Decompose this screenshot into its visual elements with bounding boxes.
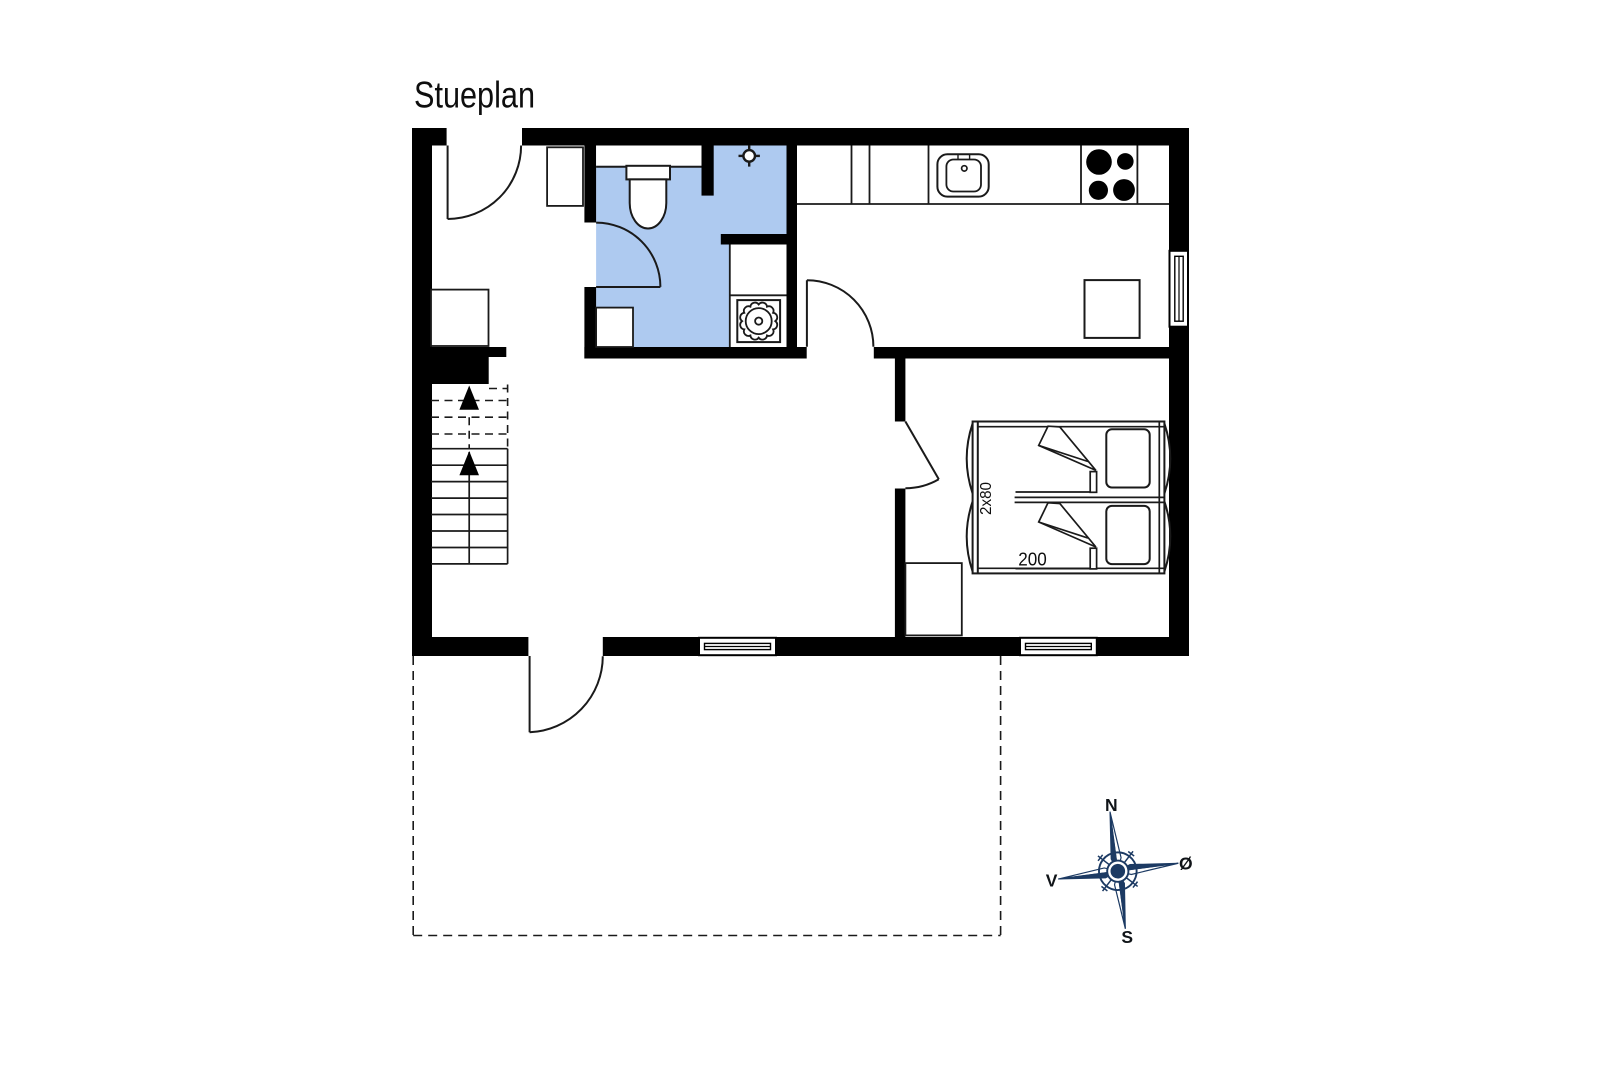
svg-text:Stueplan: Stueplan [414, 73, 535, 115]
svg-text:S: S [1121, 927, 1133, 947]
svg-text:Ø: Ø [1179, 854, 1193, 874]
svg-text:2x80: 2x80 [978, 482, 995, 515]
svg-text:200: 200 [1018, 548, 1047, 569]
svg-text:V: V [1046, 871, 1058, 891]
svg-text:N: N [1105, 795, 1118, 815]
